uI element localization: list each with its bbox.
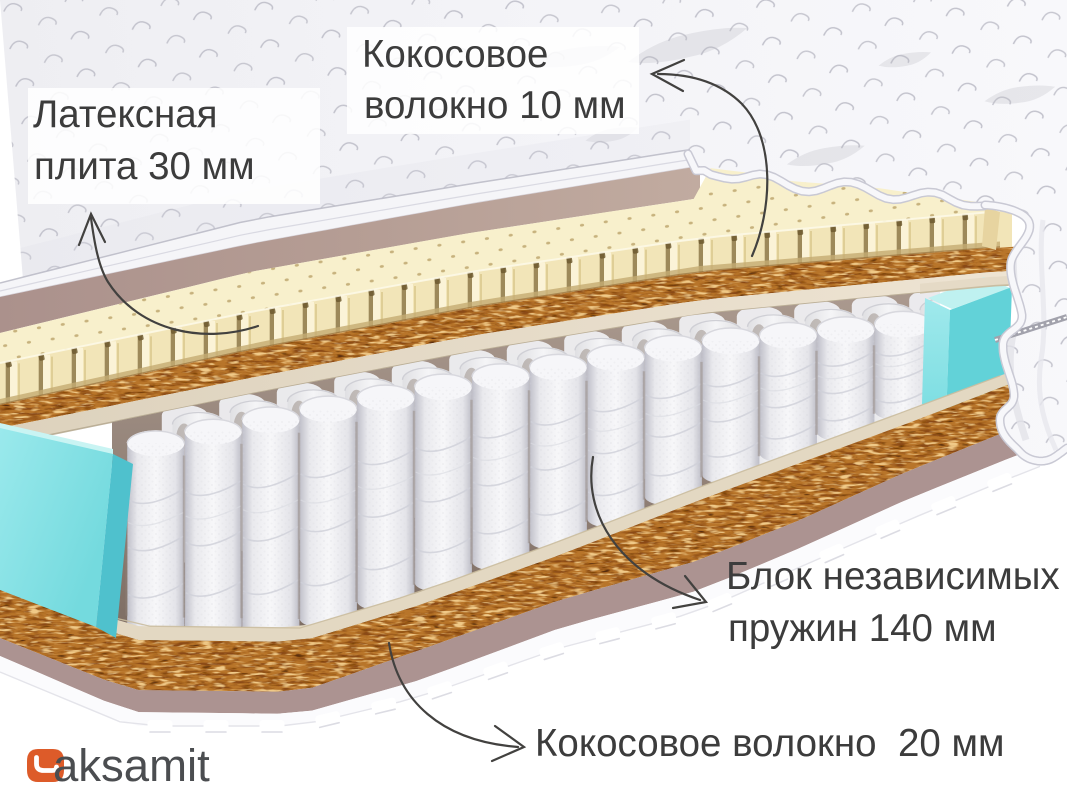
svg-text:плита 30 мм: плита 30 мм: [34, 145, 255, 188]
svg-text:пружин 140 мм: пружин 140 мм: [728, 607, 997, 650]
svg-text:волокно 10 мм: волокно 10 мм: [364, 84, 626, 127]
svg-text:aksamit: aksamit: [53, 740, 210, 791]
svg-text:Латексная: Латексная: [33, 93, 218, 136]
svg-text:Кокосовое: Кокосовое: [362, 33, 548, 76]
svg-text:Кокосовое волокно 20 мм: Кокосовое волокно 20 мм: [535, 722, 1004, 765]
svg-text:Блок независимых: Блок независимых: [726, 555, 1060, 598]
